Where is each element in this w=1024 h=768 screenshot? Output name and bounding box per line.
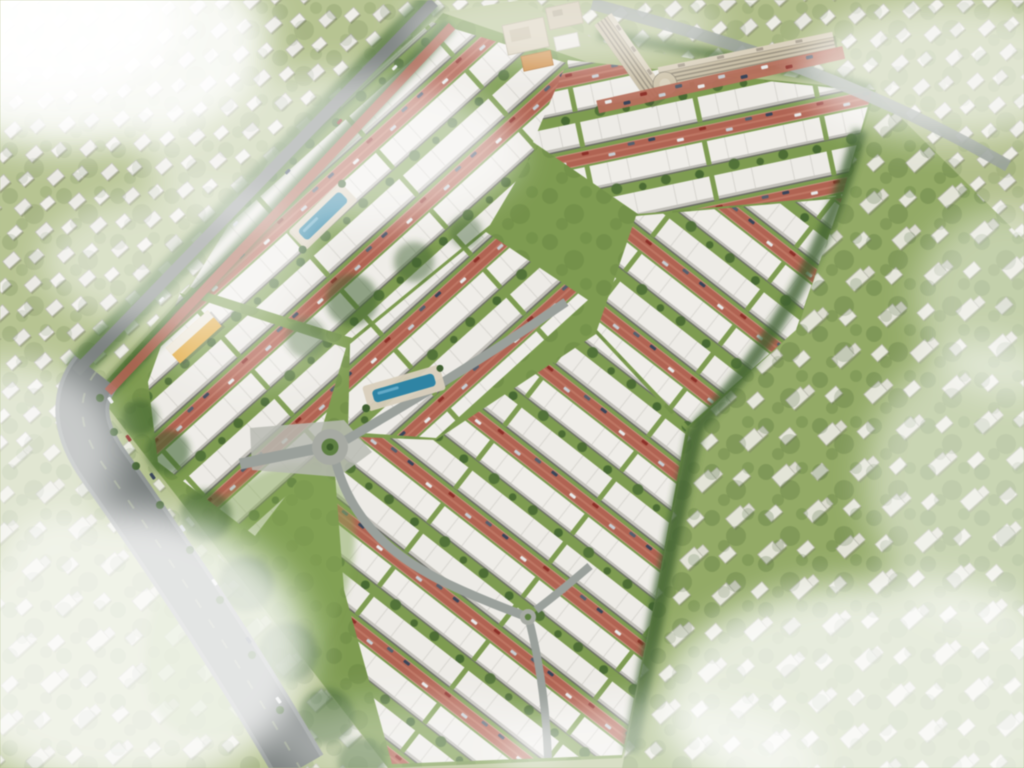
aerial-render: Aerial rendering of a gated residential … <box>0 0 1024 768</box>
masterplan-illustration <box>0 0 1024 768</box>
